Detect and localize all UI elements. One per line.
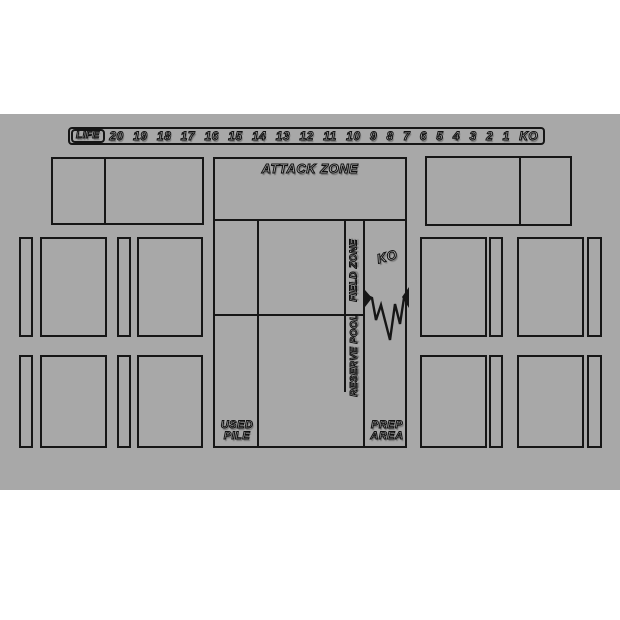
attack-zone-divider	[215, 219, 405, 221]
card-slot	[517, 355, 584, 448]
pair-divider	[519, 158, 521, 224]
card-slot	[137, 237, 203, 337]
card-slot-tab	[117, 355, 131, 448]
used-pile-label-line2: PILE	[215, 431, 259, 443]
field-row-divider	[215, 314, 363, 316]
card-slot	[517, 237, 584, 337]
life-track-values: 2019181716151413121110987654321KO	[105, 130, 543, 142]
life-value: 5	[436, 130, 443, 142]
prep-area-label: PREP AREA	[365, 420, 409, 443]
life-value: 19	[133, 130, 147, 142]
card-slot-tab	[587, 355, 602, 448]
pair-divider	[104, 159, 106, 223]
life-track: LIFE 2019181716151413121110987654321KO	[68, 127, 545, 145]
top-left-card-pair	[51, 157, 204, 225]
card-slot	[40, 355, 107, 448]
playmat-image: LIFE 2019181716151413121110987654321KO	[0, 0, 620, 620]
ko-zone-label: KO	[364, 244, 410, 270]
life-track-label: LIFE	[71, 129, 105, 143]
card-slot	[137, 355, 203, 448]
card-slot-tab	[489, 355, 503, 448]
explosion-tear-icon	[361, 282, 409, 350]
prep-area-label-line2: AREA	[365, 431, 409, 443]
card-slot-tab	[117, 237, 131, 337]
life-value: 17	[181, 130, 195, 142]
used-pile-label: USED PILE	[215, 420, 259, 443]
card-slot-tab	[19, 355, 33, 448]
life-value: 9	[370, 130, 377, 142]
life-value: 16	[204, 130, 218, 142]
card-slot	[40, 237, 107, 337]
life-value: 15	[228, 130, 242, 142]
life-value: 1	[503, 130, 510, 142]
life-value: 4	[453, 130, 460, 142]
field-zone-label: FIELD ZONE	[349, 239, 360, 301]
life-value: KO	[519, 130, 538, 142]
life-value: 6	[420, 130, 427, 142]
card-slot-tab	[587, 237, 602, 337]
top-right-card-pair	[425, 156, 572, 226]
life-value: 8	[387, 130, 394, 142]
reserve-pool-label: RESERVE POOL	[349, 314, 360, 397]
card-slot	[420, 355, 487, 448]
used-pile-column-line	[257, 219, 259, 446]
life-value: 14	[252, 130, 266, 142]
card-slot	[420, 237, 487, 337]
life-value: 13	[276, 130, 290, 142]
life-value: 7	[403, 130, 410, 142]
life-value: 20	[109, 130, 123, 142]
life-value: 11	[323, 130, 336, 142]
center-play-area: ATTACK ZONE FIELD ZONE RESERVE POOL KO U…	[213, 157, 407, 448]
life-value: 3	[469, 130, 476, 142]
card-slot-tab	[19, 237, 33, 337]
card-slot-tab	[489, 237, 503, 337]
life-value: 12	[300, 130, 314, 142]
life-value: 18	[157, 130, 171, 142]
attack-zone-label: ATTACK ZONE	[215, 161, 405, 176]
playmat-surface: LIFE 2019181716151413121110987654321KO	[0, 114, 620, 490]
life-value: 2	[486, 130, 493, 142]
life-value: 10	[346, 130, 360, 142]
